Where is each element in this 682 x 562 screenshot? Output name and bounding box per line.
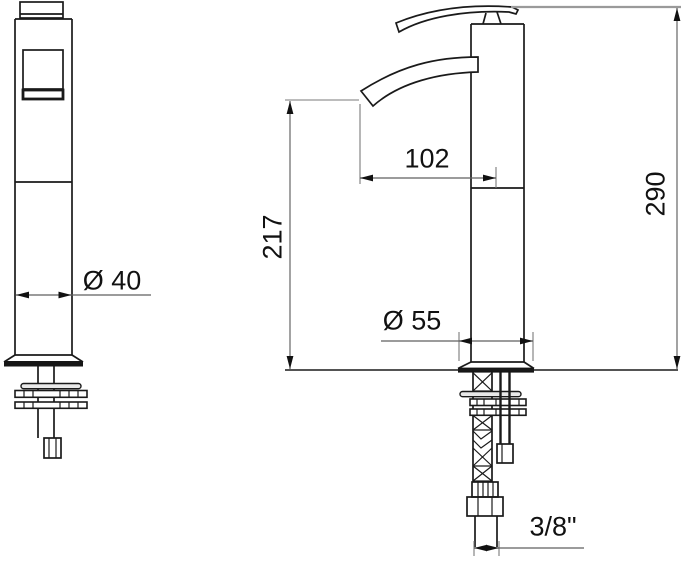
side-view	[285, 6, 678, 547]
supply-hose	[497, 373, 513, 464]
dimension-base-diameter	[381, 332, 533, 361]
threaded-rod	[473, 373, 492, 483]
hose-end-fitting	[467, 482, 503, 547]
front-view	[4, 2, 87, 458]
faucet-technical-drawing: Ø 40 102 217 290 Ø 55 3/8"	[0, 0, 682, 562]
label-spout-height: 217	[260, 214, 287, 259]
label-spout-reach: 102	[404, 146, 449, 173]
dimension-spout-height	[285, 100, 359, 369]
dimension-supply-connection	[474, 541, 584, 556]
label-overall-height: 290	[643, 171, 670, 216]
label-base-diameter: Ø 55	[383, 308, 442, 335]
label-supply-connection: 3/8"	[529, 514, 576, 541]
label-body-diameter: Ø 40	[83, 268, 142, 295]
